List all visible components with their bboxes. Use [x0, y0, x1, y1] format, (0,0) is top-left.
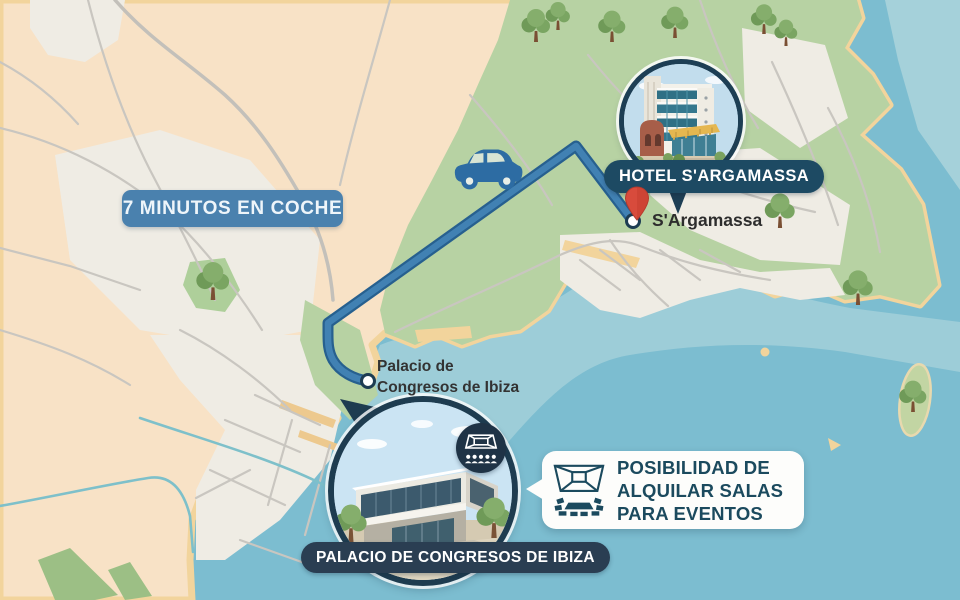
- route-start-marker[interactable]: [362, 375, 375, 388]
- events-callout-line3: PARA EVENTOS: [617, 502, 783, 525]
- travel-time-badge[interactable]: 7 MINUTOS EN COCHE: [122, 190, 343, 227]
- hotel-pin-label: S'Argamassa: [652, 210, 762, 231]
- venue-map-label-line1: Palacio de: [377, 356, 519, 377]
- venue-map-label-line2: Congresos de Ibiza: [377, 377, 519, 398]
- venue-name-badge[interactable]: PALACIO DE CONGRESOS DE IBIZA: [301, 542, 610, 573]
- presentation-icon: [456, 423, 506, 473]
- route-map: 7 MINUTOS EN COCHE: [0, 0, 960, 600]
- events-callout[interactable]: POSIBILIDAD DE ALQUILAR SALAS PARA EVENT…: [542, 451, 804, 529]
- events-callout-line1: POSIBILIDAD DE: [617, 456, 783, 479]
- events-callout-line2: ALQUILAR SALAS: [617, 479, 783, 502]
- venue-map-label: Palacio de Congresos de Ibiza: [377, 356, 519, 398]
- map-pin-icon[interactable]: [623, 185, 651, 228]
- events-callout-text: POSIBILIDAD DE ALQUILAR SALAS PARA EVENT…: [617, 456, 783, 525]
- conference-room-icon: [550, 461, 608, 519]
